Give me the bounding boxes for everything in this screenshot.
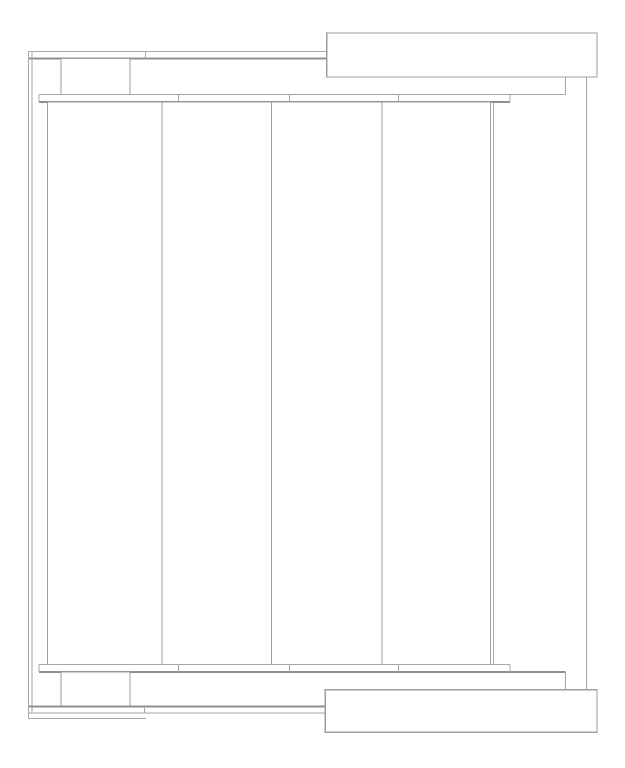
panel-3 bbox=[272, 102, 383, 665]
bottom-left-bracket-box bbox=[61, 672, 130, 707]
top-left-bracket-box bbox=[61, 58, 130, 94]
bottom-cassette-box bbox=[325, 690, 597, 733]
panel-4 bbox=[382, 102, 490, 665]
panel-2 bbox=[162, 102, 272, 665]
technical-drawing-canvas bbox=[0, 0, 625, 768]
top-cassette-box bbox=[327, 33, 597, 77]
panel-1 bbox=[47, 102, 162, 665]
drawing-page bbox=[0, 0, 625, 768]
